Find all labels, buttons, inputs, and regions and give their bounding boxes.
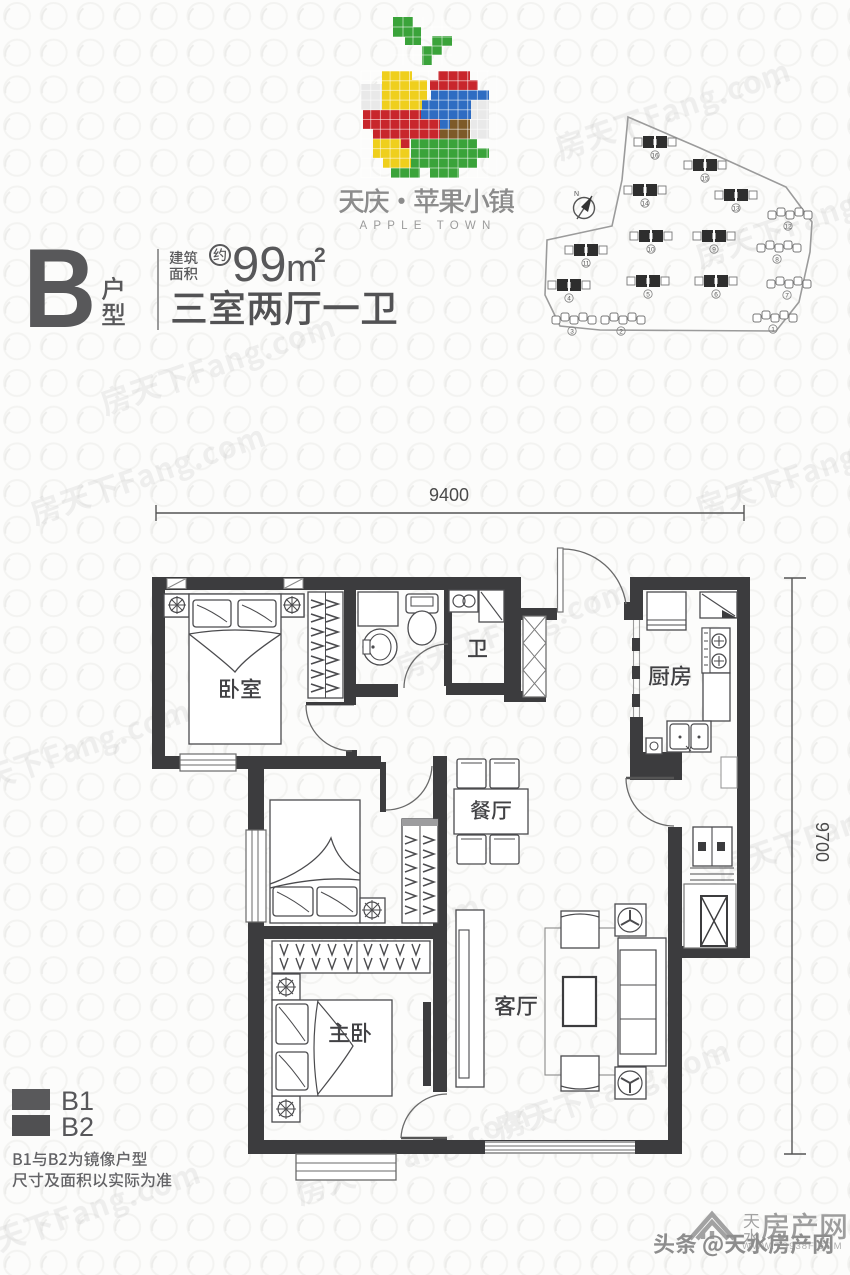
svg-text:3: 3	[570, 329, 574, 336]
svg-text:9700: 9700	[812, 822, 832, 862]
svg-text:15: 15	[701, 176, 709, 183]
svg-text:8: 8	[775, 257, 779, 264]
svg-text:12: 12	[784, 224, 792, 231]
svg-text:m: m	[286, 248, 318, 290]
svg-text:10: 10	[647, 247, 655, 254]
svg-text:9: 9	[712, 247, 716, 254]
svg-text:4: 4	[567, 296, 571, 303]
svg-text:B2: B2	[61, 1112, 94, 1142]
svg-text:1: 1	[771, 327, 775, 334]
svg-text:13: 13	[732, 206, 740, 213]
svg-text:7: 7	[785, 293, 789, 300]
svg-text:B: B	[23, 226, 96, 351]
svg-text:N: N	[574, 191, 579, 198]
svg-text:2: 2	[314, 244, 326, 267]
svg-text:2: 2	[619, 329, 623, 336]
svg-text:14: 14	[641, 201, 649, 208]
svg-text:16: 16	[651, 153, 659, 160]
svg-text:5: 5	[646, 292, 650, 299]
svg-text:9400: 9400	[429, 485, 469, 505]
svg-text:6: 6	[714, 292, 718, 299]
svg-text:99: 99	[232, 238, 287, 292]
svg-text:11: 11	[583, 261, 590, 268]
svg-text:APPLE TOWN: APPLE TOWN	[360, 220, 497, 232]
